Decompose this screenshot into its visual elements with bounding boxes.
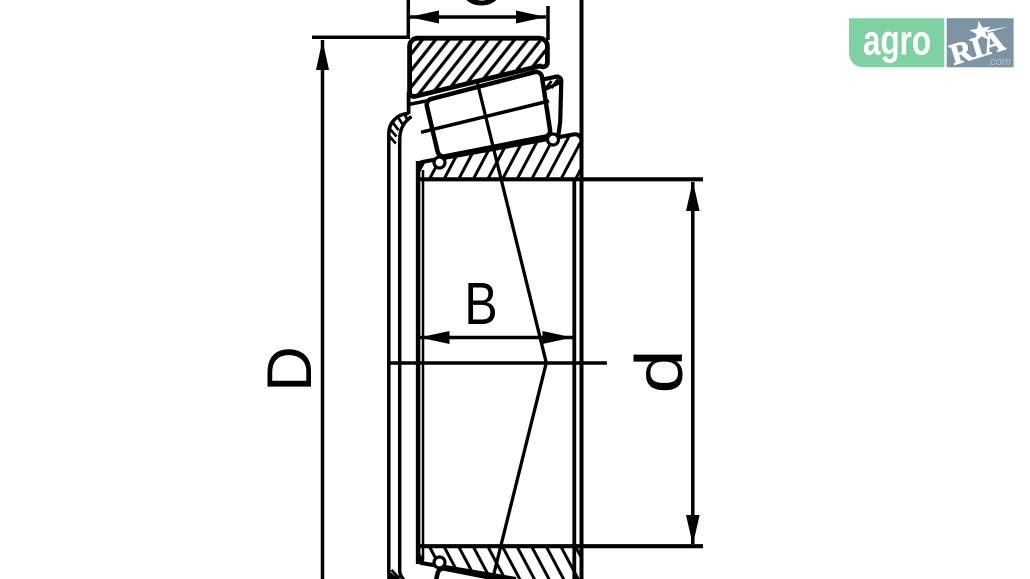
svg-text:.com: .com <box>987 56 1011 68</box>
svg-text:D: D <box>255 346 325 392</box>
svg-text:d: d <box>621 349 697 393</box>
svg-text:B: B <box>464 270 497 337</box>
svg-text:agro: agro <box>863 17 931 64</box>
